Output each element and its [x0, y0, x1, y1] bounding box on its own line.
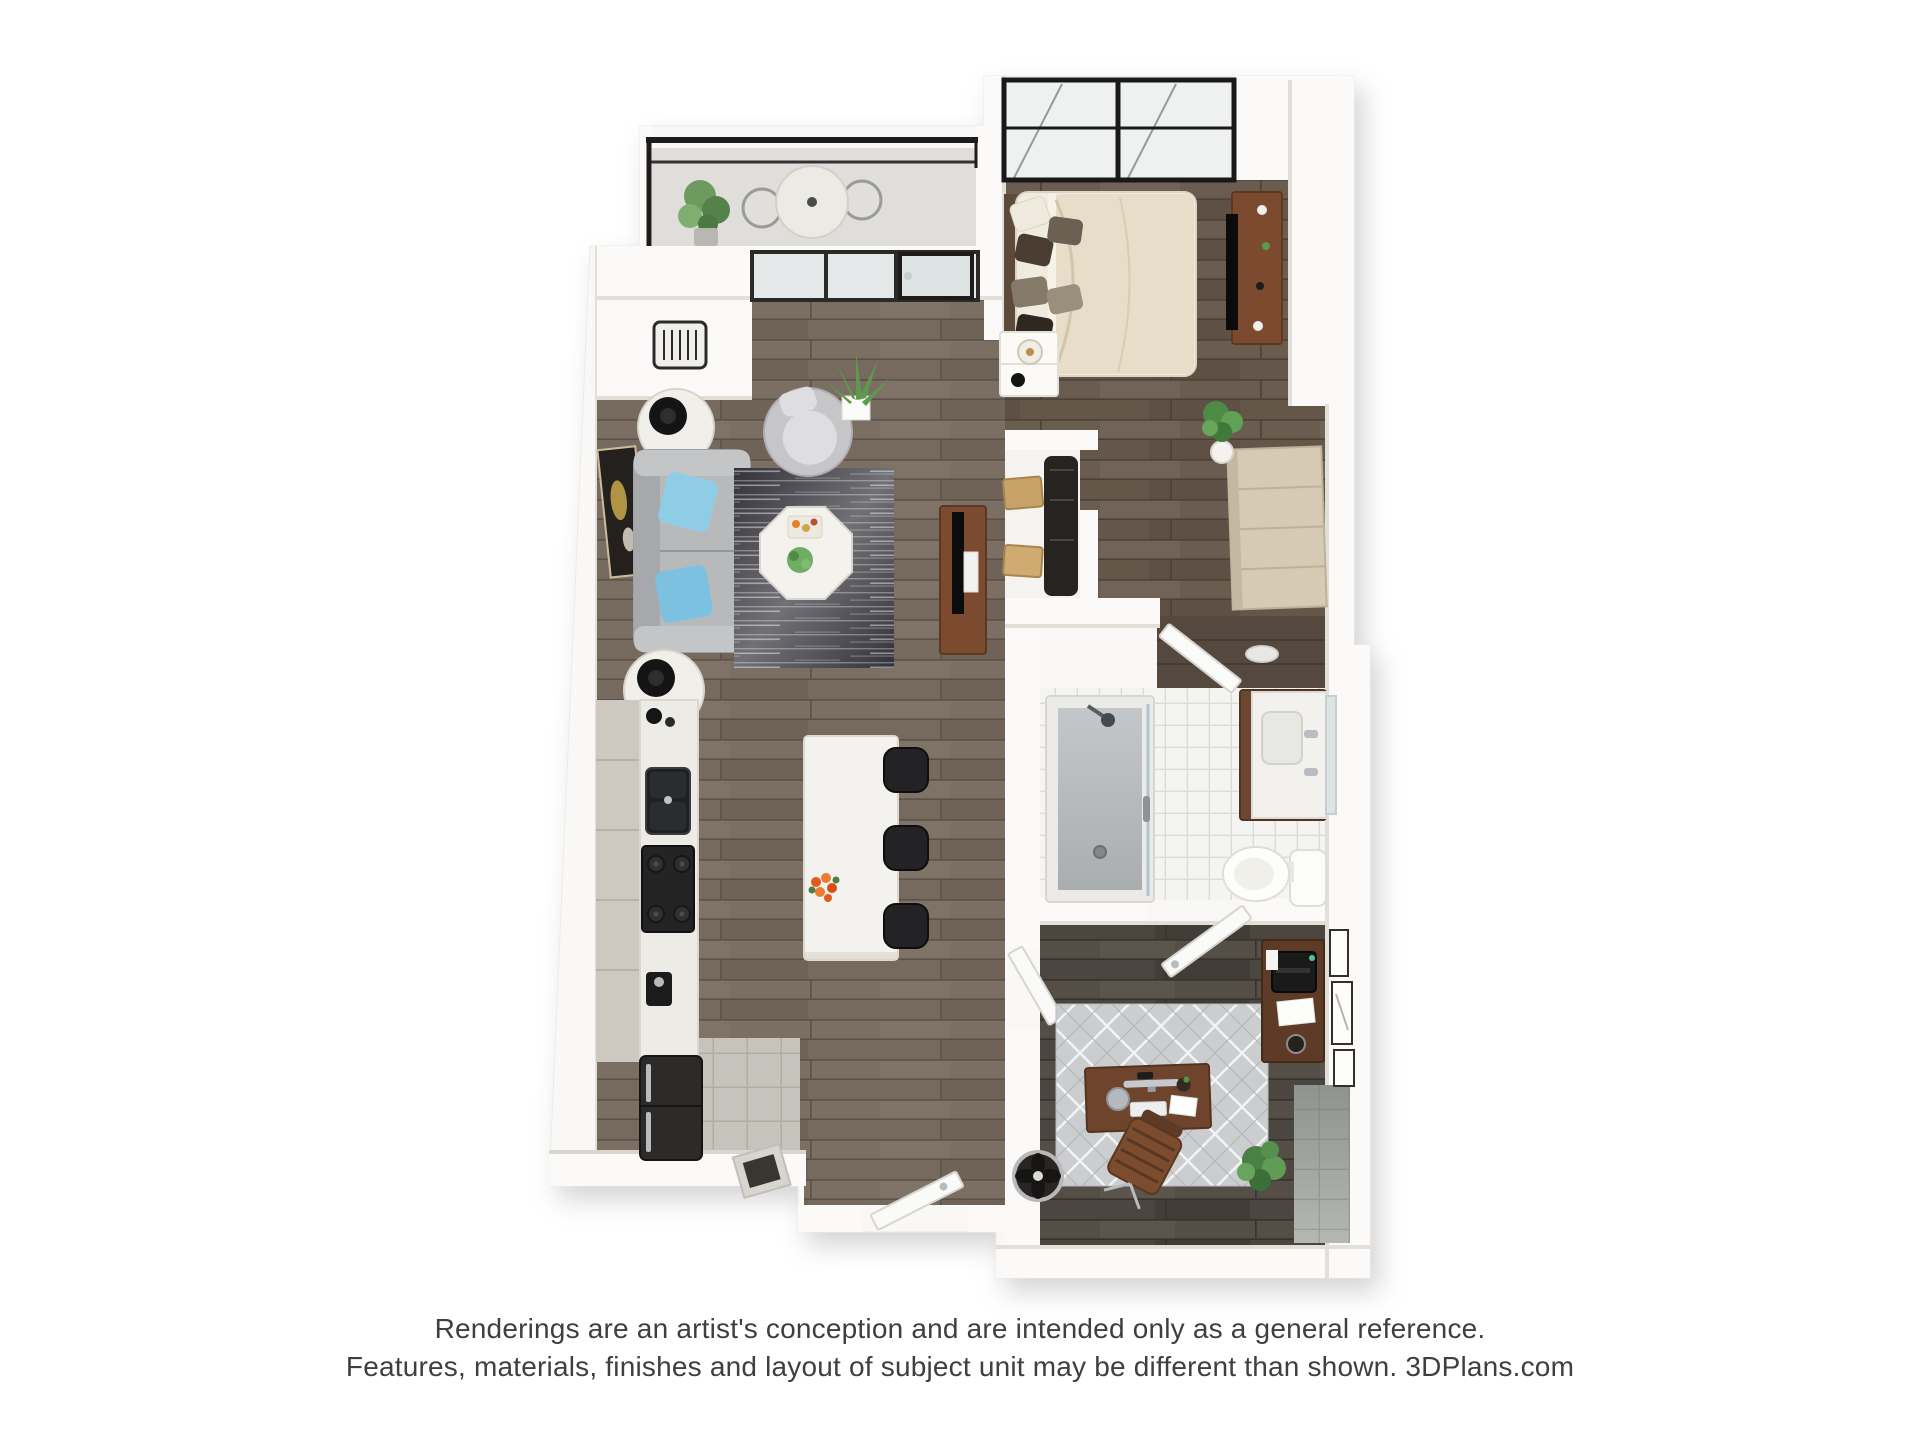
- kitchen-sink: [646, 768, 690, 834]
- phone: [1137, 1072, 1153, 1080]
- floor-plan-rendering: [0, 0, 1920, 1440]
- wall-greatroom-east-lower: [1005, 1030, 1040, 1245]
- wall-office-south: [996, 1245, 1370, 1278]
- wall-closet-north: [1005, 430, 1098, 450]
- toilet: [1223, 847, 1326, 906]
- cooktop: [642, 846, 694, 932]
- shower-head: [1101, 713, 1115, 727]
- closet-storage-box: [1003, 476, 1043, 509]
- bar-stool: [884, 904, 928, 948]
- wall-bedroom-east: [1288, 76, 1354, 406]
- kitchen-cabinets: [596, 700, 640, 1062]
- disclaimer-line-1: Renderings are an artist's conception an…: [0, 1310, 1920, 1348]
- shower-door-handle: [1143, 796, 1150, 822]
- wall-greatroom-east-upper: [1005, 598, 1040, 948]
- tv-screen: [1226, 214, 1238, 330]
- wall-entry-south-east: [968, 1205, 1008, 1232]
- bar-stool: [884, 748, 928, 792]
- closet: [1003, 450, 1080, 598]
- closet-clothes: [1044, 456, 1078, 596]
- coffee-table-plant: [787, 547, 813, 573]
- shower-drain: [1094, 846, 1106, 858]
- disclaimer-line-2: Features, materials, finishes and layout…: [0, 1348, 1920, 1386]
- bar-stool: [884, 826, 928, 870]
- plant-pot: [1211, 441, 1233, 463]
- shower: [1046, 696, 1154, 902]
- refrigerator: [640, 1056, 702, 1160]
- coffee-maker: [646, 972, 672, 1006]
- paper: [1169, 1095, 1197, 1116]
- coffee-table: [760, 507, 852, 599]
- vanity-sink: [1262, 712, 1302, 764]
- office-entry-tile-corner: [1294, 1085, 1350, 1243]
- accent-pillow: [654, 564, 714, 624]
- hall-dresser: [1227, 446, 1327, 609]
- disclaimer: Renderings are an artist's conception an…: [0, 1310, 1920, 1386]
- dial-speaker: [1287, 1035, 1305, 1053]
- tv-screen: [952, 512, 964, 614]
- hvac-vent-icon: [654, 322, 706, 368]
- closet-storage-box: [1003, 545, 1043, 578]
- balcony-chair-left: [743, 189, 781, 227]
- bedroom-dresser-tv: [1226, 192, 1282, 344]
- entry-tile-floor: [694, 1038, 800, 1150]
- bathroom-vanity: [1240, 690, 1336, 820]
- vestibule-light: [1246, 646, 1278, 662]
- tv-console: [940, 506, 986, 654]
- balcony-plant-pot: [694, 228, 718, 246]
- sofa: [634, 450, 750, 652]
- balcony-table-center: [807, 197, 817, 207]
- wall-hall-east: [1325, 400, 1354, 645]
- soundbar: [964, 552, 978, 592]
- faucet: [1304, 730, 1318, 738]
- balcony-sliding-door: [752, 252, 978, 300]
- wall-closet-stub: [1080, 510, 1098, 602]
- desk-lamp: [1107, 1088, 1130, 1111]
- vanity-mirror: [1326, 696, 1336, 814]
- kettle: [646, 708, 662, 724]
- nightstand: [1000, 332, 1058, 396]
- door-handle: [904, 272, 912, 280]
- faucet: [1304, 768, 1318, 776]
- floor-plan-page: Renderings are an artist's conception an…: [0, 0, 1920, 1440]
- vase: [1011, 373, 1025, 387]
- faucet: [664, 796, 672, 804]
- paper: [1277, 998, 1315, 1026]
- canister: [665, 717, 675, 727]
- floor-fan: [1014, 1152, 1062, 1200]
- bedroom-window-wall: [1004, 80, 1234, 180]
- bar-stools: [884, 748, 928, 948]
- credenza-printer: [1262, 940, 1324, 1062]
- wall-entry-south-west: [798, 1205, 862, 1232]
